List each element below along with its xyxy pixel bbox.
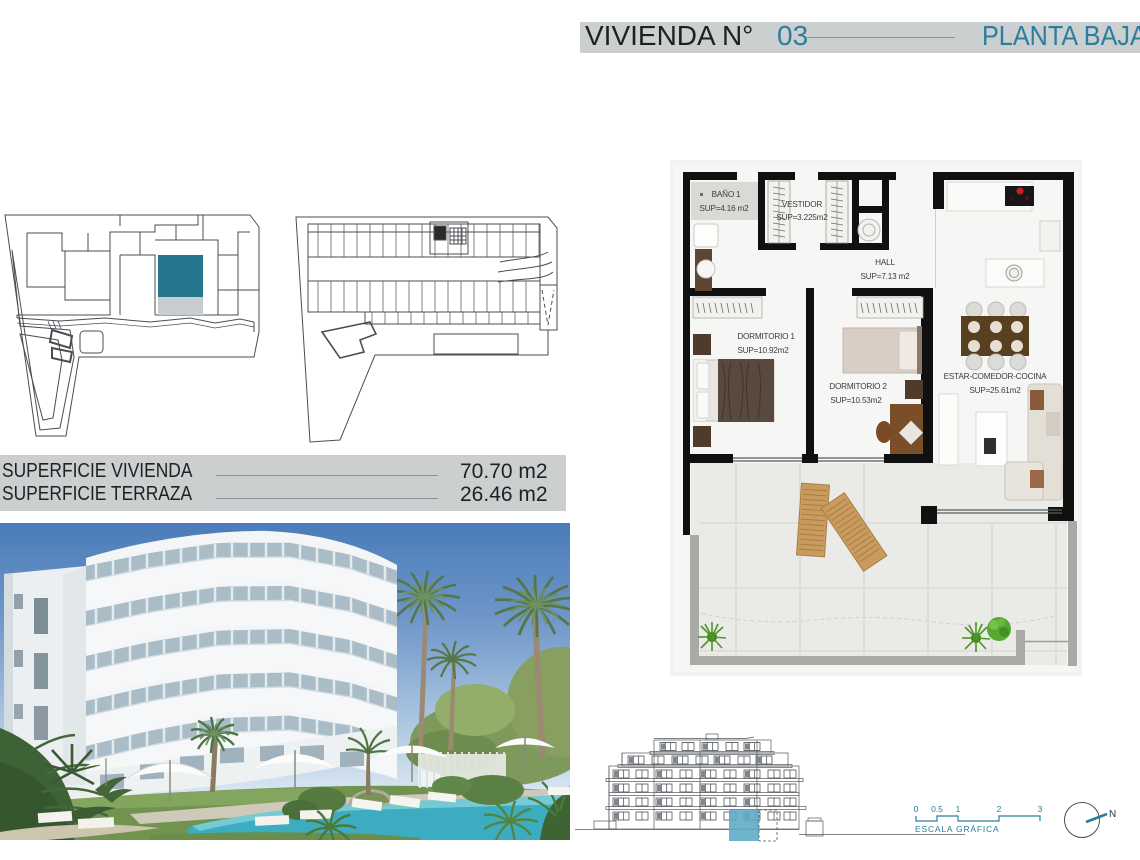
svg-text:0: 0	[914, 804, 919, 814]
svg-text:DORMITORIO 2: DORMITORIO 2	[829, 382, 887, 391]
svg-text:HALL: HALL	[875, 258, 895, 267]
svg-text:VESTIDOR: VESTIDOR	[782, 200, 823, 209]
svg-text:0.5: 0.5	[931, 804, 943, 814]
svg-text:SUP=25.61m2: SUP=25.61m2	[969, 386, 1021, 395]
svg-text:DORMITORIO 1: DORMITORIO 1	[737, 332, 795, 341]
svg-text:SUP=7.13 m2: SUP=7.13 m2	[861, 272, 911, 281]
svg-text:ESCALA GRÁFICA: ESCALA GRÁFICA	[915, 824, 999, 834]
svg-text:1: 1	[956, 804, 961, 814]
svg-text:2: 2	[997, 804, 1002, 814]
svg-text:3: 3	[1038, 804, 1043, 814]
svg-text:SUP=4.16 m2: SUP=4.16 m2	[700, 204, 750, 213]
svg-text:BAÑO 1: BAÑO 1	[712, 189, 741, 199]
svg-text:SUP=10.53m2: SUP=10.53m2	[830, 396, 882, 405]
svg-text:SUP=3.225m2: SUP=3.225m2	[776, 213, 828, 222]
svg-text:ESTAR-COMEDOR-COCINA: ESTAR-COMEDOR-COCINA	[944, 372, 1047, 381]
svg-text:SUP=10.92m2: SUP=10.92m2	[737, 346, 789, 355]
svg-text:N: N	[1109, 809, 1116, 820]
